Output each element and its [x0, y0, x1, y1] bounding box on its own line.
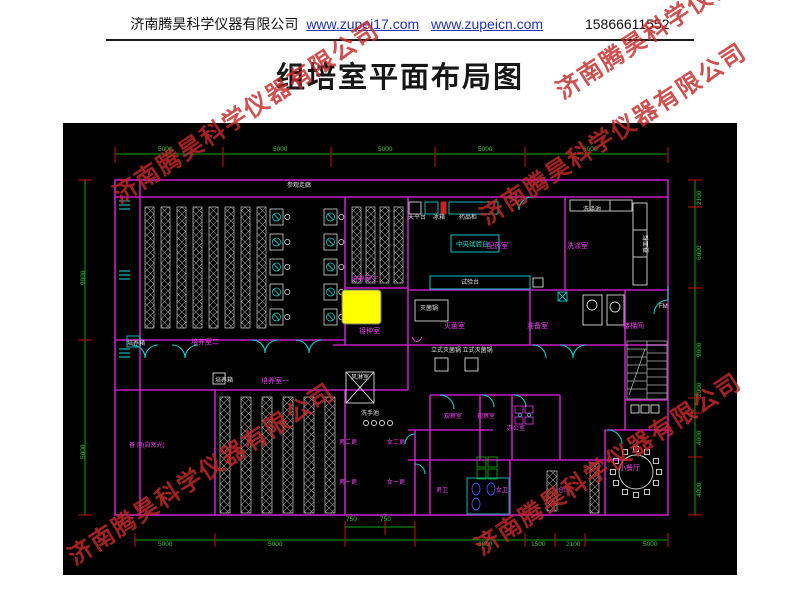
office-desks: [515, 406, 533, 424]
website-link-1[interactable]: www.zupei17.com: [306, 16, 419, 32]
website-link-2[interactable]: www.zupeicn.com: [431, 16, 543, 32]
highlight-box: [342, 290, 381, 324]
floor-plan-drawing: 参观走廊培养室二培养室三培养室一接种室配药室洗涤室灭菌室准备室楼梯间小餐厅备 用…: [63, 123, 737, 575]
dimension-ticks: [78, 147, 702, 547]
page-title: 组培室平面布局图: [0, 54, 800, 96]
floor-plan-svg: [63, 123, 737, 575]
header-divider: [106, 39, 694, 41]
header: 济南腾昊科学仪器有限公司 www.zupei17.com www.zupeicn…: [0, 14, 800, 34]
page: 济南腾昊科学仪器有限公司 www.zupei17.com www.zupeicn…: [0, 0, 800, 600]
company-name: 济南腾昊科学仪器有限公司: [130, 16, 298, 32]
stairs: [627, 341, 667, 399]
dimension-lines: [85, 154, 695, 540]
fan-units: [270, 209, 344, 325]
toilet-fixtures: [467, 457, 509, 514]
furniture: [127, 200, 659, 426]
culture-racks: [145, 207, 599, 513]
dining-table: [611, 447, 662, 498]
phone-number: 15866611552: [585, 16, 670, 32]
